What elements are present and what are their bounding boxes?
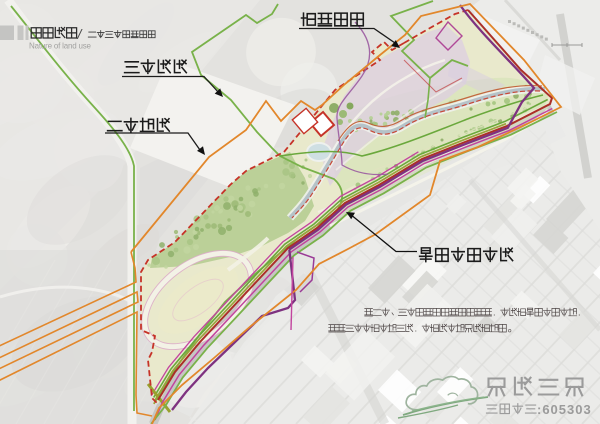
svg-text::605303: :605303 — [537, 402, 592, 417]
svg-text:Nature of land use: Nature of land use — [29, 42, 92, 51]
